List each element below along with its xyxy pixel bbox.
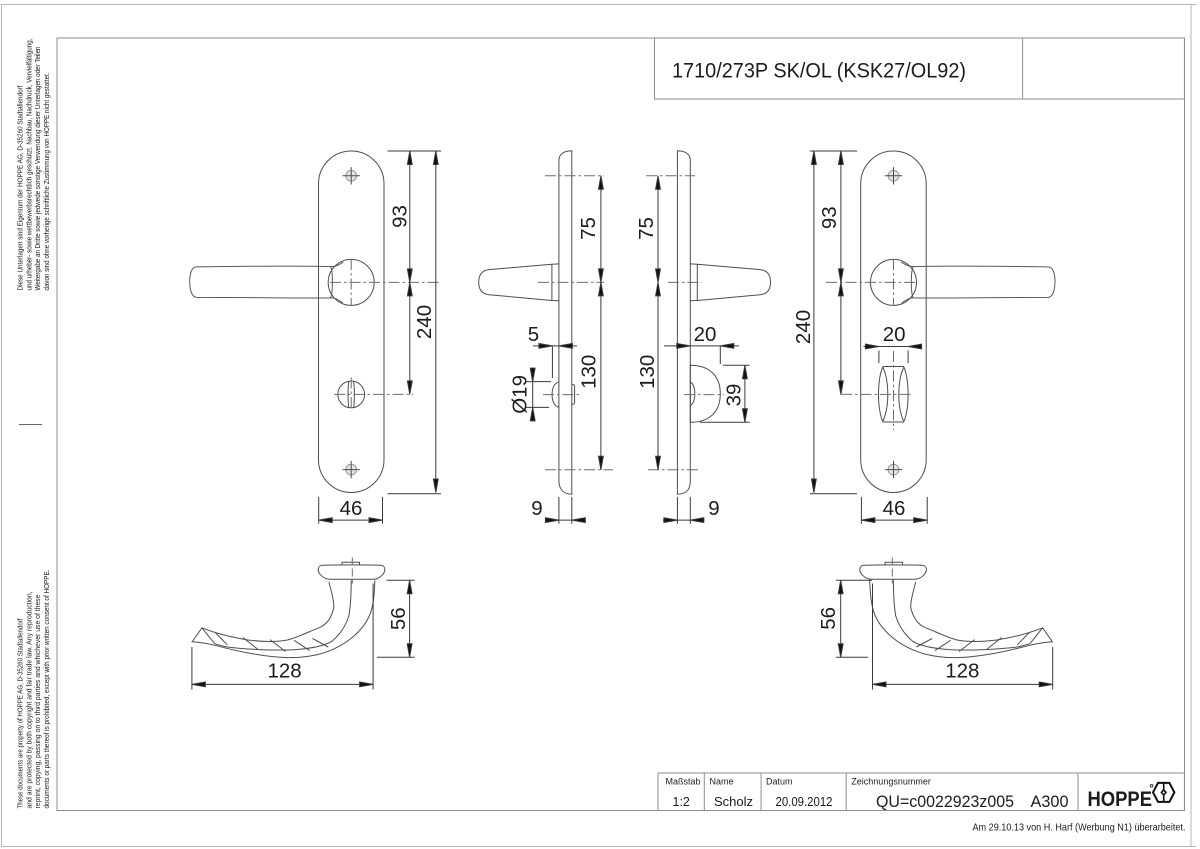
svg-text:56: 56 xyxy=(387,607,410,630)
svg-text:93: 93 xyxy=(388,205,411,228)
svg-text:HOPPE: HOPPE xyxy=(1088,787,1153,811)
svg-text:Weitergabe an Dritte sowie jed: Weitergabe an Dritte sowie jedwede sonst… xyxy=(33,47,42,291)
svg-text:Scholz: Scholz xyxy=(714,794,753,809)
svg-text:130: 130 xyxy=(636,355,659,389)
svg-text:240: 240 xyxy=(792,310,815,344)
svg-text:75: 75 xyxy=(577,217,600,240)
svg-text:Datum: Datum xyxy=(766,777,793,787)
svg-text:128: 128 xyxy=(945,660,979,683)
svg-text:Am 29.10.13 von H. Harf (Werbu: Am 29.10.13 von H. Harf (Werbung N1) übe… xyxy=(973,823,1186,834)
svg-text:Name: Name xyxy=(710,777,734,787)
svg-text:5: 5 xyxy=(528,323,539,346)
svg-text:1:2: 1:2 xyxy=(673,795,690,809)
svg-text:9: 9 xyxy=(708,497,719,520)
svg-text:und urheber- sowie wettbewerbs: und urheber- sowie wettbewerbsrechtlich … xyxy=(24,39,33,291)
svg-text:These documents are property o: These documents are property of HOPPE AG… xyxy=(16,619,25,809)
svg-text:QU=c0022923z005: QU=c0022923z005 xyxy=(876,792,1014,811)
svg-text:93: 93 xyxy=(818,206,841,229)
svg-text:56: 56 xyxy=(817,607,840,630)
svg-text:Ø19: Ø19 xyxy=(509,375,532,414)
svg-text:documents or parts thereof is: documents or parts thereof is prohibited… xyxy=(42,570,51,809)
svg-text:46: 46 xyxy=(340,497,363,520)
svg-text:75: 75 xyxy=(635,217,658,240)
svg-text:1710/273P SK/OL (KSK27/OL92): 1710/273P SK/OL (KSK27/OL92) xyxy=(672,60,966,83)
svg-text:20: 20 xyxy=(694,323,717,346)
svg-text:128: 128 xyxy=(267,660,301,683)
svg-text:46: 46 xyxy=(883,497,906,520)
svg-text:davon sind ohne vorherige schr: davon sind ohne vorherige schriftliche Z… xyxy=(42,73,51,291)
svg-text:reprint, copying, passing on t: reprint, copying, passing on to third pa… xyxy=(33,595,42,809)
svg-text:Diese Unterlagen sind Eigentum: Diese Unterlagen sind Eigentum der HOPPE… xyxy=(16,86,25,291)
svg-text:130: 130 xyxy=(577,355,600,389)
svg-text:9: 9 xyxy=(531,497,542,520)
svg-text:39: 39 xyxy=(722,384,745,407)
svg-text:A300: A300 xyxy=(1031,792,1069,811)
svg-text:20: 20 xyxy=(883,323,906,346)
svg-text:Zeichnungsnummer: Zeichnungsnummer xyxy=(851,777,931,787)
svg-text:and are protected by both copy: and are protected by both copyright and … xyxy=(24,592,33,809)
svg-text:20.09.2012: 20.09.2012 xyxy=(776,795,833,809)
svg-text:240: 240 xyxy=(413,305,436,339)
svg-text:Maßstab: Maßstab xyxy=(666,777,701,787)
